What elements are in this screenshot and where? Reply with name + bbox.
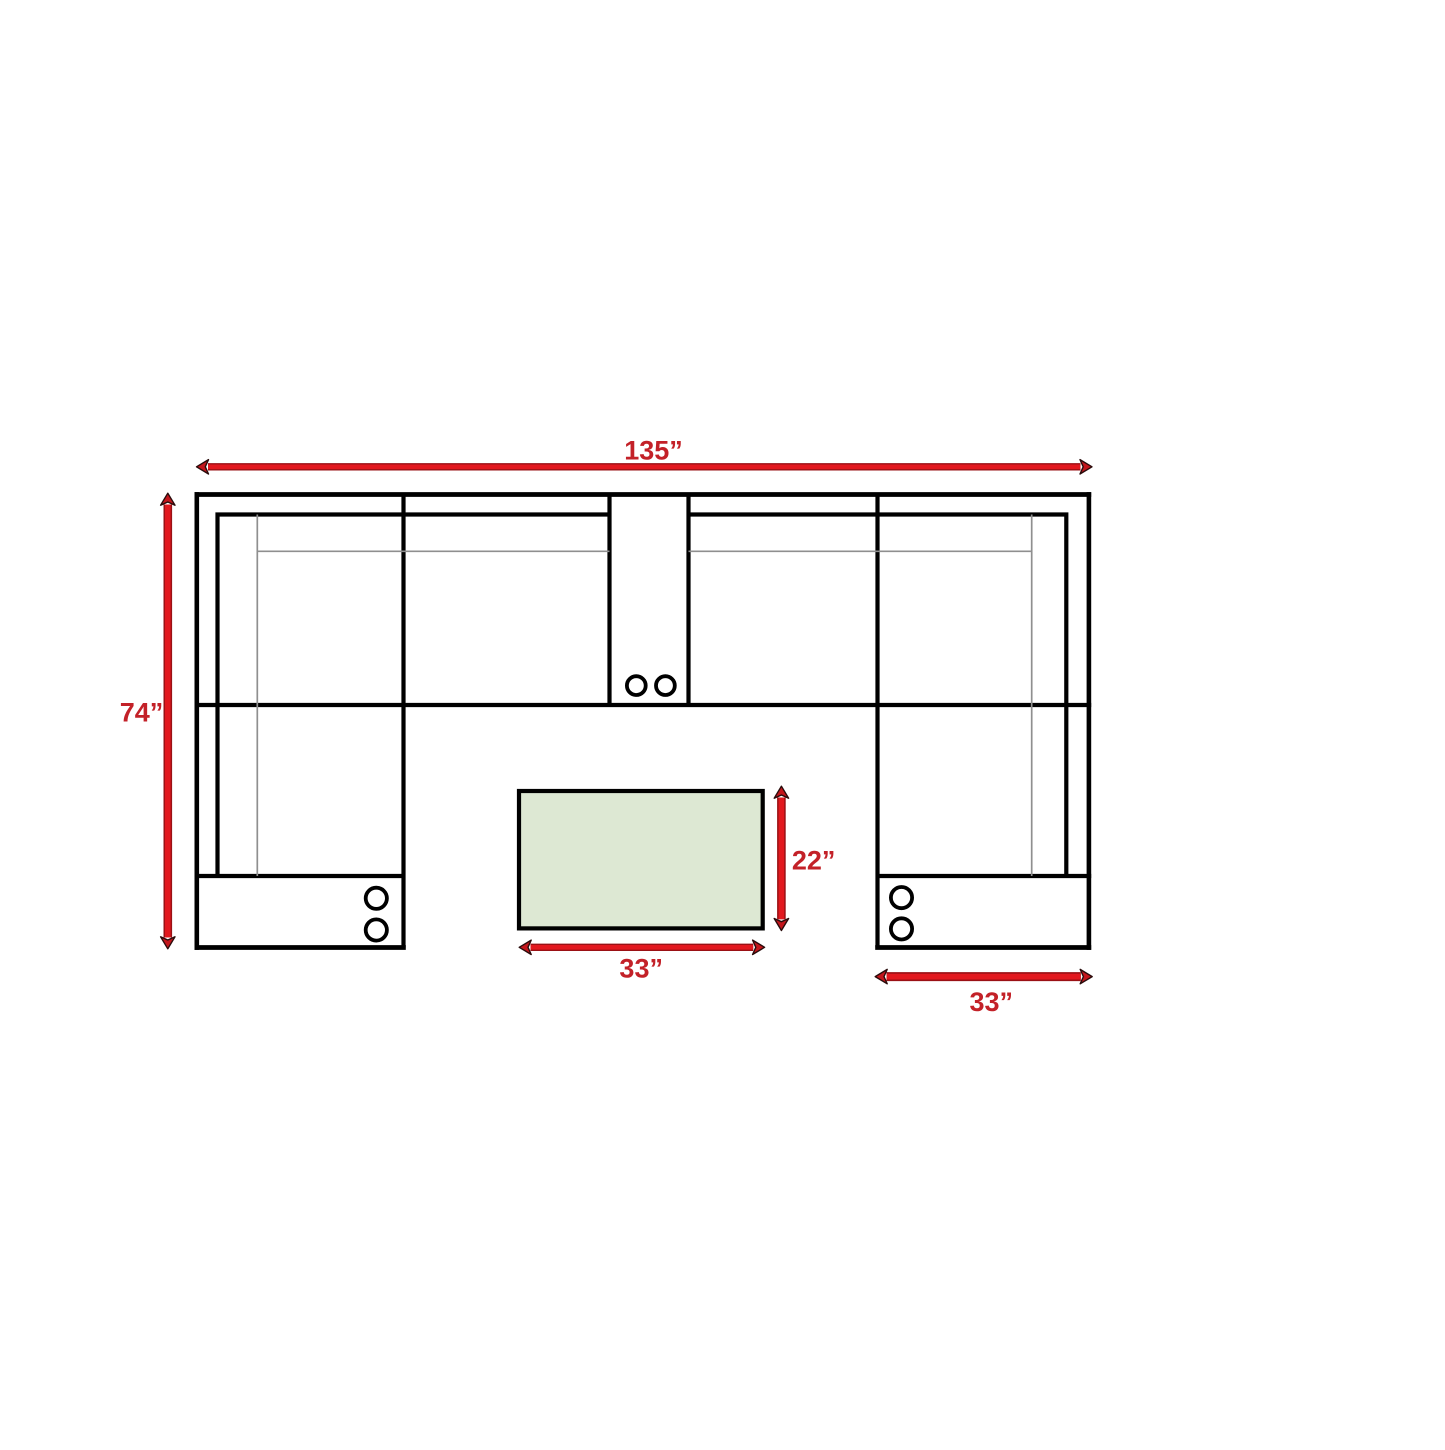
svg-text:33”: 33”	[970, 987, 1014, 1017]
svg-text:74”: 74”	[120, 697, 164, 727]
svg-text:135”: 135”	[624, 436, 683, 466]
svg-text:22”: 22”	[792, 846, 836, 876]
svg-text:33”: 33”	[619, 954, 663, 984]
